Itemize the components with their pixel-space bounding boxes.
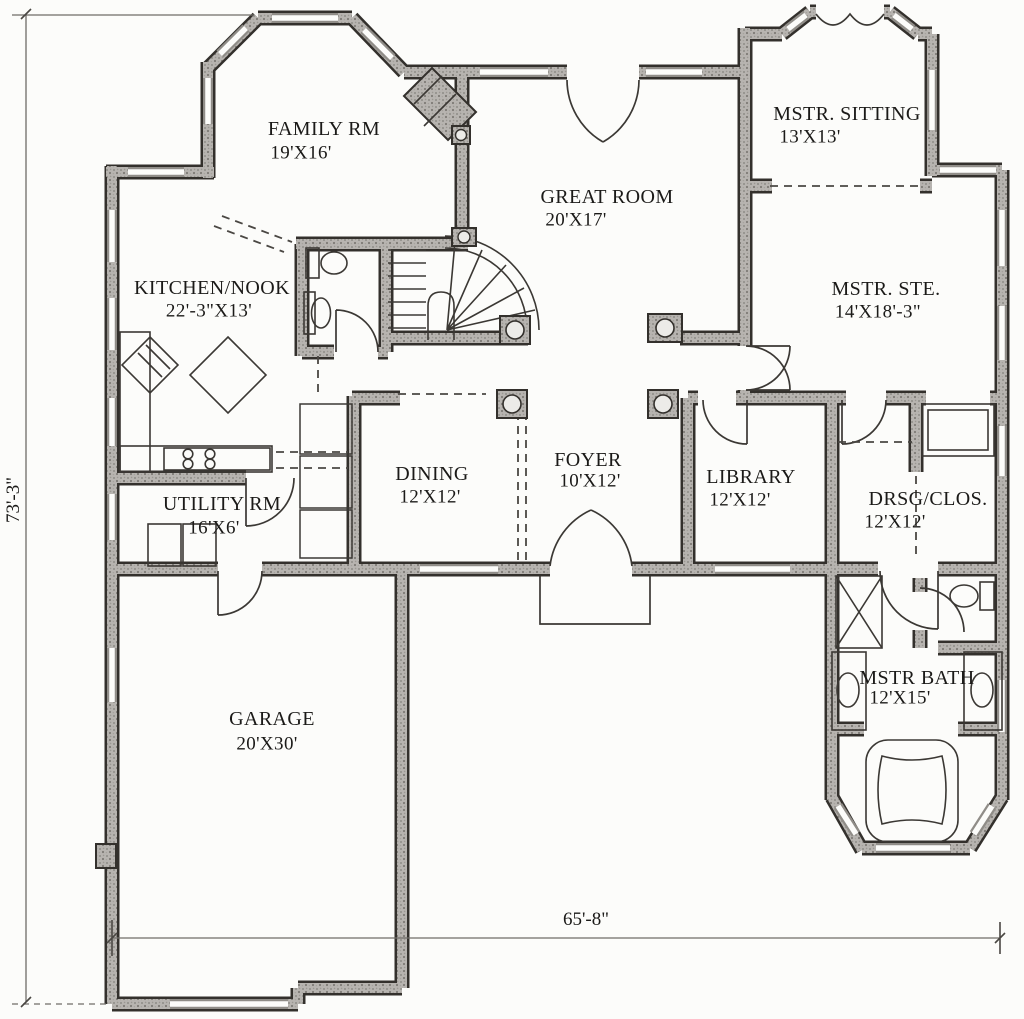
room-label-great-room-dims: 20'X17' [545, 211, 606, 230]
toilet-bowl [950, 585, 978, 607]
floorplan-page: FAMILY RM 19'X16' GREAT ROOM 20'X17' MST… [0, 0, 1024, 1019]
column-post [452, 228, 476, 246]
room-label-great-room-name: GREAT ROOM [540, 187, 673, 207]
column-post [648, 314, 682, 342]
room-label-utility-rm-dims: 16'X6' [188, 519, 239, 538]
kitchen-fixtures [120, 332, 272, 472]
room-label-family-rm-dims: 19'X16' [270, 144, 331, 163]
room-label-library-name: LIBRARY [706, 467, 795, 487]
bathtub [866, 740, 958, 842]
chimney-bump [96, 844, 116, 868]
dimension-lines [12, 9, 1005, 1007]
pantry-closets [300, 404, 352, 558]
entry-double-door [550, 510, 632, 566]
great-room-double-door [567, 80, 639, 142]
toilet-tank [980, 582, 994, 610]
room-label-mstr-sitting-name: MSTR. SITTING [773, 104, 920, 124]
room-label-mstr-ste-dims: 14'X18'-3" [835, 303, 921, 322]
mstr-bath-door [880, 571, 938, 629]
room-label-kitchen-nook-dims: 22'-3"X13' [166, 302, 252, 321]
room-label-foyer-dims: 10'X12' [559, 472, 620, 491]
kitchen-island [190, 337, 266, 413]
room-label-garage-name: GARAGE [229, 709, 315, 729]
cooktop [164, 448, 270, 470]
room-label-family-rm-name: FAMILY RM [268, 119, 380, 139]
room-label-dining-name: DINING [395, 464, 469, 484]
powder-room-fixtures [304, 248, 347, 334]
column-post [497, 390, 527, 418]
room-label-mstr-ste-name: MSTR. STE. [831, 279, 940, 299]
column-posts [452, 126, 682, 418]
column-post [648, 390, 678, 418]
room-label-mstr-sitting-dims: 13'X13' [779, 128, 840, 147]
column-post [452, 126, 470, 144]
room-label-mstr-bath-name: MSTR BATH [859, 668, 974, 688]
room-label-foyer-name: FOYER [554, 450, 622, 470]
room-label-mstr-bath-dims: 12'X15' [869, 689, 930, 708]
overall-height-dimension: 73'-3" [3, 477, 25, 523]
overall-width-dimension: 65'-8" [563, 909, 609, 931]
room-label-library-dims: 12'X12' [709, 491, 770, 510]
room-label-utility-rm-name: UTILITY RM [163, 494, 281, 514]
entry-porch [540, 576, 650, 624]
room-label-drsg-clos-name: DRSG/CLOS. [868, 489, 987, 509]
room-label-dining-dims: 12'X12' [399, 488, 460, 507]
room-label-kitchen-nook-name: KITCHEN/NOOK [134, 278, 290, 298]
room-label-drsg-clos-dims: 12'X12' [864, 513, 925, 532]
column-post [500, 316, 530, 344]
closet-bench [922, 404, 994, 456]
room-label-garage-dims: 20'X30' [236, 735, 297, 754]
